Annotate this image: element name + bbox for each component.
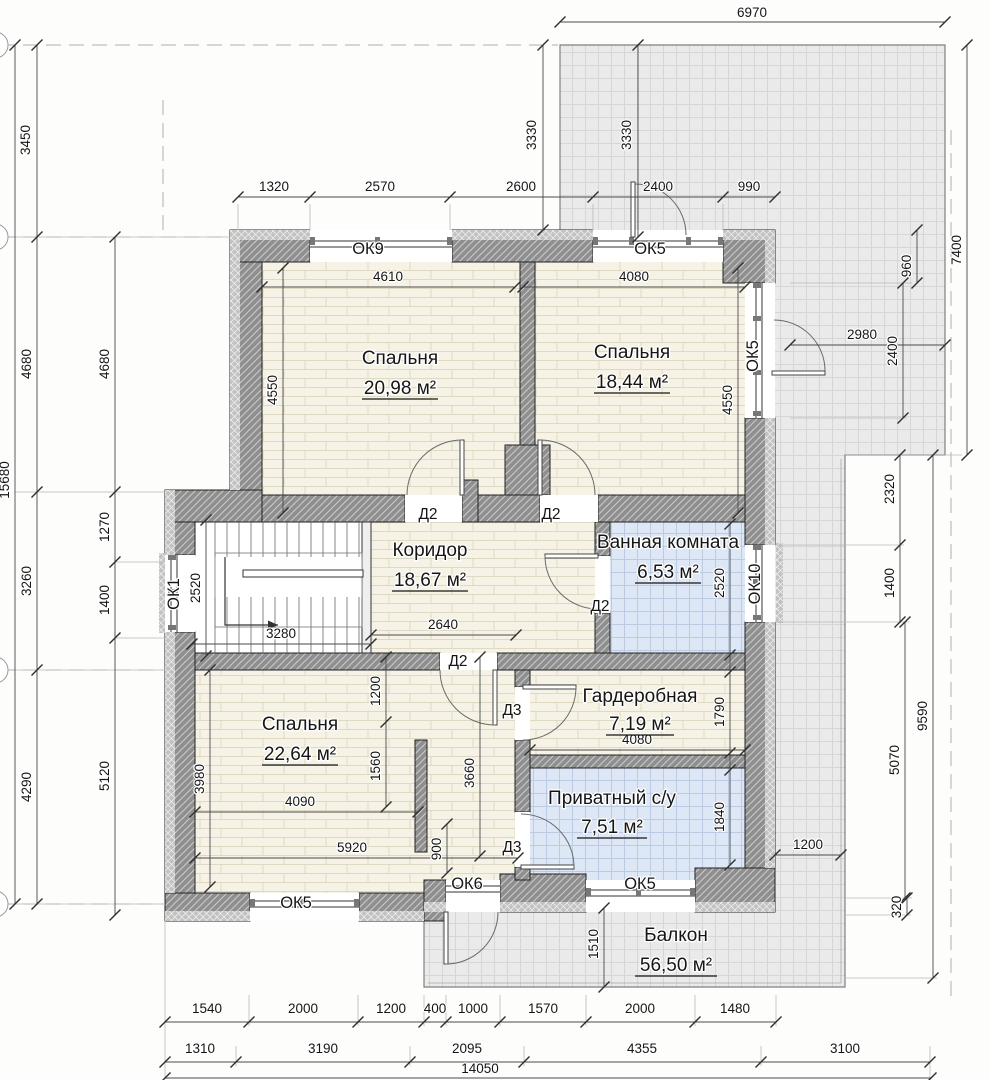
door-label-d2-bathroom: Д2 — [590, 598, 609, 615]
dim-label: 1200 — [368, 676, 383, 706]
dim-label: 1840 — [712, 802, 727, 832]
dim-label: 2520 — [188, 573, 203, 603]
dim-label: 320 — [889, 896, 904, 919]
dim-label: 1540 — [192, 1001, 222, 1016]
dim-label: 2095 — [452, 1041, 482, 1056]
dim-label: 6970 — [737, 5, 767, 20]
room-area: 18,67 м² — [394, 570, 466, 591]
floor-plan-page: 6970 3450 3330 3330 1320 2570 2600 2400 … — [0, 0, 990, 1080]
dim-label: 1200 — [376, 1001, 406, 1016]
dim-label: 14050 — [461, 1061, 499, 1076]
window-label-ok1: ОК1 — [165, 578, 183, 610]
dim-label: 1560 — [368, 751, 383, 781]
dim-label: 3450 — [18, 125, 33, 155]
room-name: Ванная комната — [597, 532, 740, 553]
dim-label: 4290 — [19, 772, 34, 802]
room-area: 7,19 м² — [609, 714, 671, 735]
dim-label: 1310 — [185, 1041, 215, 1056]
room-area: 20,98 м² — [364, 378, 436, 399]
dim-label: 5070 — [887, 745, 902, 775]
dim-label: 4090 — [285, 794, 315, 809]
dim-label: 2400 — [885, 336, 900, 366]
dim-label: 2600 — [506, 179, 536, 194]
dim-label: 1200 — [793, 837, 823, 852]
dim-label: 2980 — [847, 327, 877, 342]
dim-label: 5120 — [97, 761, 112, 791]
floor-plan-svg: 6970 3450 3330 3330 1320 2570 2600 2400 … — [0, 0, 990, 1080]
dim-label: 1320 — [259, 179, 289, 194]
room-name: Спальня — [594, 342, 670, 363]
room-area: 22,64 м² — [264, 744, 336, 765]
room-name: Спальня — [262, 714, 338, 735]
dim-label: 4610 — [373, 269, 403, 284]
window-label-ok5-bottom-left: ОК5 — [280, 894, 312, 912]
dim-label: 3330 — [619, 120, 634, 150]
dim-label: 5920 — [337, 840, 367, 855]
dim-label: 2000 — [288, 1001, 318, 1016]
dim-label: 4080 — [619, 269, 649, 284]
dim-label: 1790 — [712, 697, 727, 727]
dim-label: 1570 — [528, 1001, 558, 1016]
room-name: Спальня — [362, 348, 438, 369]
dim-label: 2000 — [625, 1001, 655, 1016]
dim-label: 3100 — [830, 1041, 860, 1056]
dim-label: 4550 — [265, 375, 280, 405]
window-label-ok10: ОК10 — [746, 564, 764, 605]
window-label-ok5-bottom-right: ОК5 — [624, 875, 656, 893]
dim-label: 1400 — [97, 585, 112, 615]
dim-label: 990 — [738, 179, 761, 194]
door-label-d2-bedroom1: Д2 — [418, 506, 437, 523]
room-name: Гардеробная — [583, 686, 698, 707]
dim-label: 3330 — [524, 120, 539, 150]
door-label-d2-bedroom2: Д2 — [541, 506, 560, 523]
dim-label: 1270 — [97, 512, 112, 542]
dim-label: 9590 — [915, 701, 930, 731]
dim-label: 960 — [899, 255, 914, 278]
dim-label: 4680 — [19, 349, 34, 379]
room-area: 7,51 м² — [581, 817, 643, 838]
room-area: 18,44 м² — [596, 372, 668, 393]
dim-label: 1400 — [882, 568, 897, 598]
door-label-d3-wardrobe: Д3 — [502, 702, 521, 719]
dim-label: 2640 — [428, 617, 458, 632]
dim-label: 1000 — [458, 1001, 488, 1016]
room-area: 56,50 м² — [640, 955, 712, 976]
room-area: 6,53 м² — [637, 562, 699, 583]
door-label-d3-private: Д3 — [502, 839, 521, 856]
dim-label: 4355 — [627, 1041, 657, 1056]
dim-label: 2320 — [882, 474, 897, 504]
dim-label: 900 — [429, 838, 444, 861]
window-label-ok5-top: ОК5 — [634, 240, 666, 258]
dim-label: 4680 — [97, 349, 112, 379]
room-name: Балкон — [644, 925, 708, 946]
dim-label: 4550 — [720, 385, 735, 415]
dim-label: 3660 — [462, 758, 477, 788]
dim-label: 3190 — [308, 1041, 338, 1056]
room-name: Приватный с/у — [548, 788, 676, 809]
room-name: Коридор — [392, 540, 467, 561]
door-label-d2-bedroom3: Д2 — [448, 653, 467, 670]
dim-label: 1510 — [586, 929, 601, 959]
dim-label: 15680 — [0, 461, 12, 499]
dim-label: 3280 — [266, 626, 296, 641]
window-label-ok6: ОК6 — [451, 875, 483, 893]
window-label-ok9: ОК9 — [352, 240, 384, 258]
dim-label: 7400 — [949, 235, 964, 265]
dim-label: 2570 — [365, 179, 395, 194]
dim-label: 400 — [424, 1001, 447, 1016]
dim-label: 2400 — [643, 179, 673, 194]
dim-label: 3260 — [19, 566, 34, 596]
window-label-ok5-right: ОК5 — [744, 340, 762, 372]
dim-label: 1480 — [720, 1001, 750, 1016]
dim-label: 3980 — [192, 764, 207, 794]
dim-label: 2520 — [712, 568, 727, 598]
